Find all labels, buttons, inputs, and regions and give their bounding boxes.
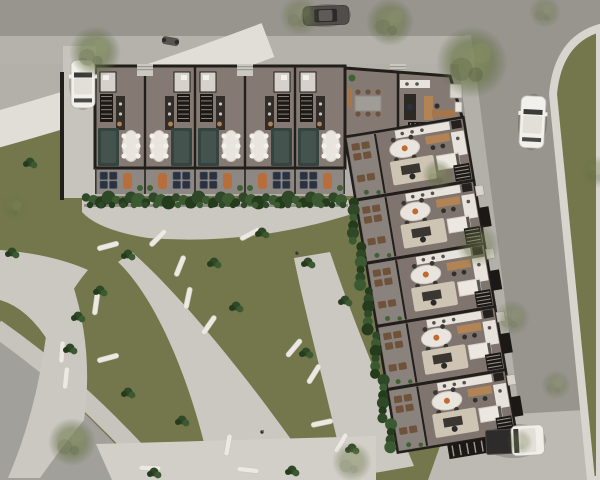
tree (69, 26, 121, 78)
driveway-wall (60, 72, 64, 200)
site-plan-canvas (0, 0, 600, 480)
tree (0, 194, 28, 222)
tree (541, 370, 571, 400)
tree (436, 26, 508, 98)
entry-porch (137, 64, 153, 76)
tree (494, 300, 530, 336)
tree (456, 223, 500, 267)
entry-porch (237, 64, 253, 76)
tree (507, 429, 533, 455)
site-plan-render (0, 0, 600, 480)
tree (422, 159, 454, 191)
tree (48, 418, 96, 466)
tree (366, 0, 414, 46)
car-white-sedan-right-road (517, 93, 549, 150)
